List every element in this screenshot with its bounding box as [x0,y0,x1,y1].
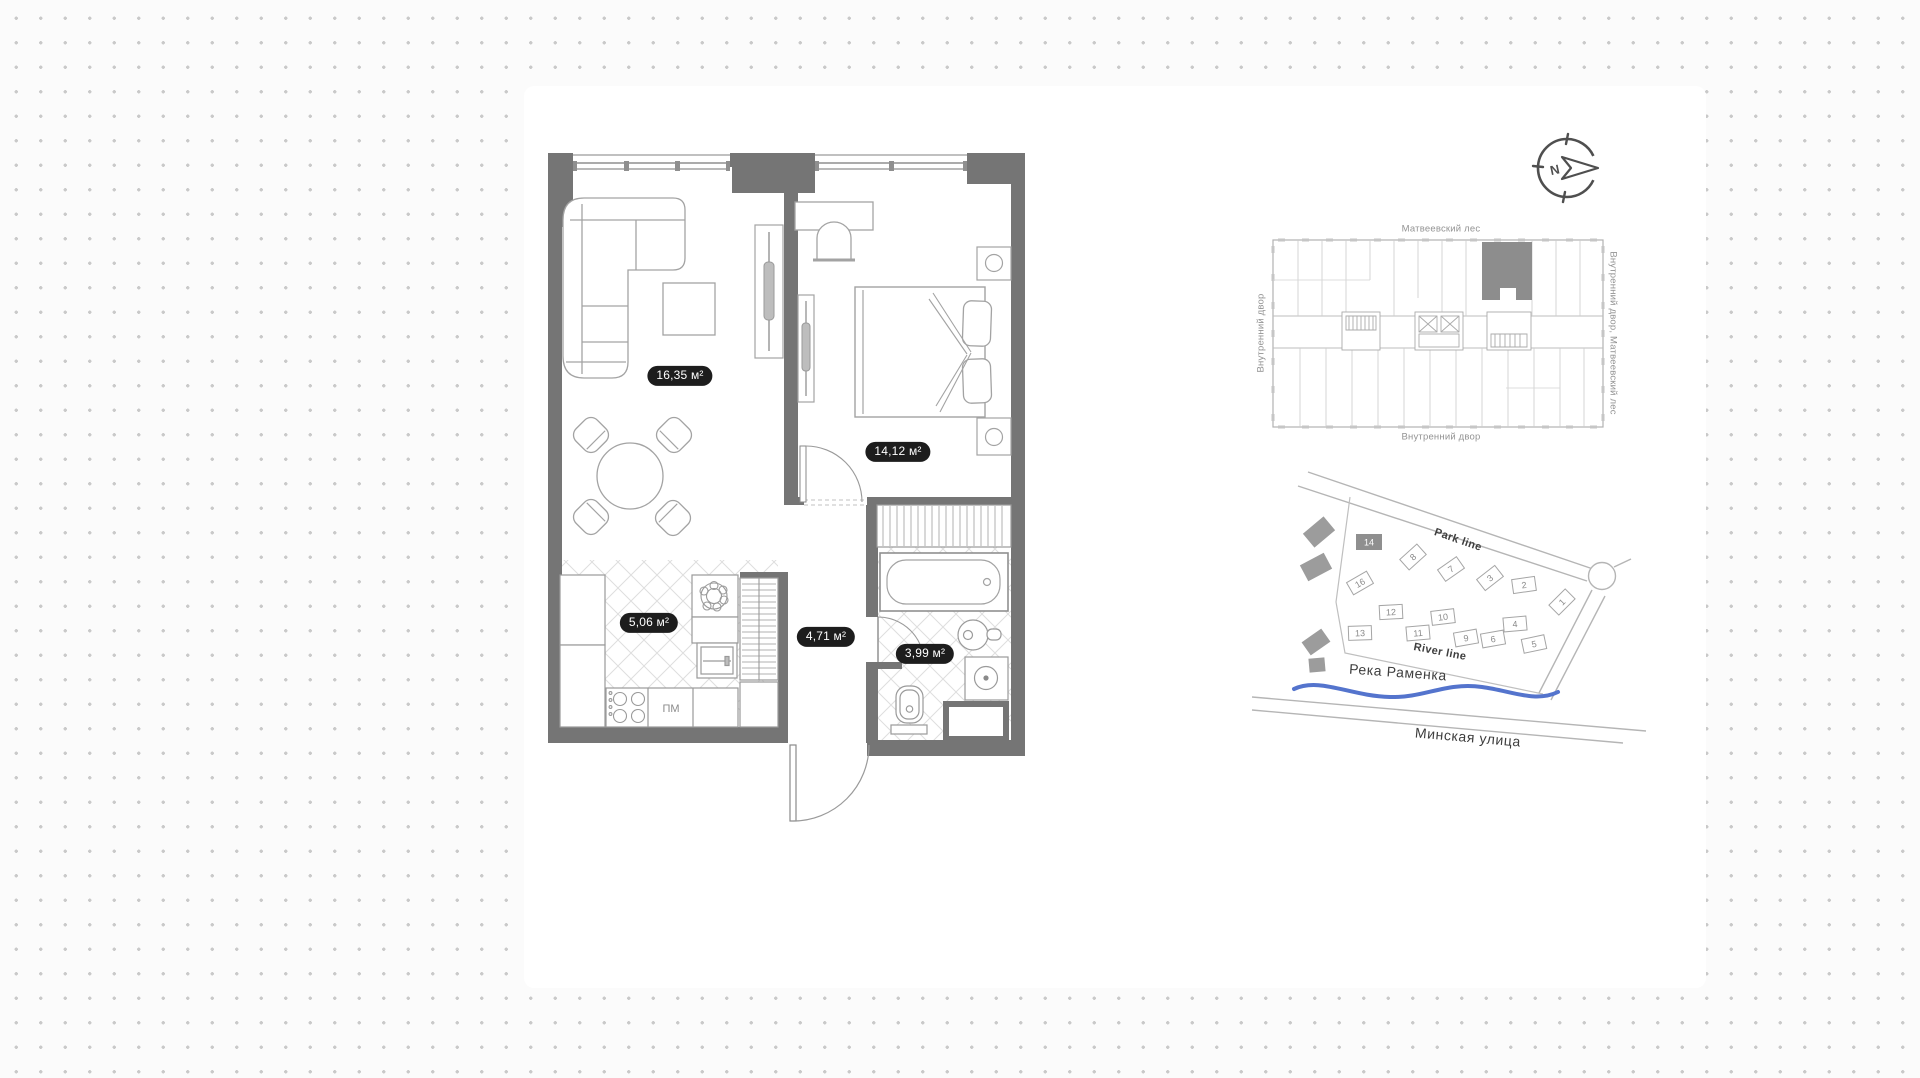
oven [697,643,737,678]
site-building-3[interactable]: 3 [1477,565,1504,590]
site-building-16[interactable]: 16 [1347,571,1374,595]
coffee-table [663,283,715,335]
area-label-bathroom: 3,99 м² [896,644,954,664]
svg-text:14: 14 [1364,538,1374,548]
svg-text:4: 4 [1512,619,1518,629]
site-building-5[interactable]: 5 [1521,635,1546,653]
building-plan-label-left: Внутренний двор [1256,293,1267,372]
building-floor-plan [1270,238,1606,430]
svg-text:13: 13 [1355,628,1365,638]
building-plan-label-right: Внутренний двор, Матвеевский лес [1608,251,1619,414]
shaft-box [946,704,1006,739]
roads [1252,472,1646,743]
dishwasher-label: ПМ [662,703,679,715]
hall-closet [740,578,778,727]
area-label-hallway: 4,71 м² [797,627,855,647]
site-building-14[interactable]: 14 [1356,534,1382,550]
site-building-8[interactable]: 8 [1400,544,1426,570]
site-building-6[interactable]: 6 [1480,630,1505,648]
site-building-2[interactable]: 2 [1512,576,1537,593]
radiator-living [755,225,783,358]
bathtub [880,553,1008,611]
river-path [1294,685,1558,697]
roundabout [1589,563,1616,590]
apartment-floor-plan: ПМ [540,120,1040,845]
compass-north-letter: N [1549,161,1561,178]
page: ПМ [0,0,1920,1078]
building-plan-label-bottom: Внутренний двор [1401,432,1480,443]
svg-text:12: 12 [1386,607,1397,618]
toilet [891,686,927,734]
washing-machine [965,657,1008,700]
compass-icon: N [1528,129,1610,209]
window-bedroom [815,153,967,173]
site-building-4[interactable]: 4 [1503,616,1527,632]
bed [855,287,992,417]
area-label-bedroom: 14,12 м² [865,442,930,462]
site-building-1[interactable]: 1 [1549,589,1575,615]
area-label-kitchen: 5,06 м² [620,613,678,633]
building-plan-label-top: Матвеевский лес [1402,224,1481,235]
site-building-13[interactable]: 13 [1348,626,1371,641]
site-building-9[interactable]: 9 [1453,629,1478,647]
area-label-living: 16,35 м² [647,366,712,386]
window-living [573,153,730,173]
svg-text:11: 11 [1413,628,1423,639]
neighbor-buildings [1300,516,1335,672]
site-building-12[interactable]: 12 [1379,604,1403,619]
site-building-7[interactable]: 7 [1438,557,1465,582]
site-map: 14 8 7 3 2 1 1 [1250,460,1650,760]
entrance-door [790,745,869,821]
site-building-11[interactable]: 11 [1406,625,1430,641]
radiator-bedroom [798,295,814,402]
bedroom-wardrobe [877,505,1011,547]
svg-text:10: 10 [1437,612,1448,623]
site-building-10[interactable]: 10 [1431,609,1456,626]
